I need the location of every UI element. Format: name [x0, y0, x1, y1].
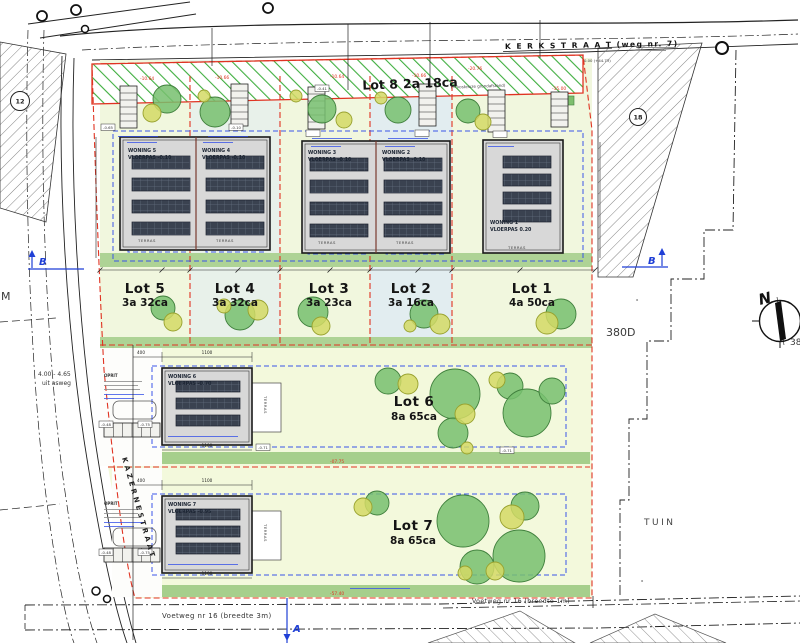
w6-level: VLOERPAS -0.70	[168, 381, 212, 387]
terras-label: TERRAS	[137, 238, 156, 243]
solar-panel-row	[132, 178, 190, 191]
tree-yellow	[475, 114, 491, 130]
dim-1100: 1100	[202, 350, 213, 355]
tree-green	[385, 97, 411, 123]
section-a-label: A	[292, 624, 301, 635]
lot7-area: 8a 65ca	[390, 535, 436, 547]
north-label: N	[757, 288, 774, 309]
tree-yellow	[398, 374, 418, 394]
spot-height: -0.71	[258, 445, 268, 450]
solar-panel-row	[503, 156, 551, 168]
solar-panel-row	[132, 200, 190, 213]
red-dim: -10.66	[215, 75, 229, 81]
oprit-label-lot7: OPRIT	[104, 501, 118, 506]
solar-panel-row	[384, 224, 442, 237]
lot3-name: Lot 3	[309, 281, 349, 297]
parcel-partial-label: 38	[790, 338, 800, 348]
lot2-area: 3a 16ca	[388, 297, 434, 309]
w2-name: WONING 2	[382, 150, 410, 156]
tree-green	[539, 378, 565, 404]
tuin-label: TUIN	[643, 518, 675, 528]
w2-level: VLOERPAS -0.10	[382, 157, 426, 163]
tree-yellow	[536, 312, 558, 334]
w5-name: WONING 5	[128, 148, 156, 154]
asweg-label-2: uit asweg	[42, 380, 71, 387]
red-dim: -10.64	[330, 74, 344, 80]
spot-height: -0.65	[103, 125, 113, 130]
asweg-label-1: 4.00 - 4.65	[38, 371, 71, 378]
solar-panel-row	[176, 543, 240, 554]
spot-x: x	[641, 578, 644, 583]
solar-panel-row	[176, 526, 240, 537]
benchmark-label: 0.00 (+44.73)	[584, 58, 611, 63]
w7-level: VLOERPAS -0.95	[168, 509, 211, 515]
terras-label: TERRAS	[317, 240, 336, 245]
lot7-name: Lot 7	[393, 518, 433, 534]
solar-panel-row	[310, 180, 368, 193]
dim-400: 400	[137, 478, 145, 483]
voetweg-3m-label: Voetweg nr 16 (breedte 3m)	[162, 612, 272, 620]
tree-yellow	[198, 90, 210, 102]
storage-stack	[231, 84, 248, 126]
lot5-name: Lot 5	[125, 281, 165, 297]
red-dim: -10.64	[140, 76, 154, 82]
hedge-band-backyards	[100, 253, 592, 267]
hatched-parcel-west	[0, 42, 66, 222]
spot-height: -0.41	[317, 86, 327, 91]
w6-name: WONING 6	[168, 374, 197, 380]
tree-yellow	[489, 372, 505, 388]
tree-green	[437, 495, 489, 547]
site-plan-canvas: 12 18	[0, 0, 800, 643]
lot4-area: 3a 32ca	[212, 297, 258, 309]
dim-1100: 1100	[202, 571, 213, 576]
tree-yellow	[458, 566, 472, 580]
parcel-number-12: 12	[15, 98, 24, 106]
terras-label: TERRAS	[215, 238, 234, 243]
storage-stack	[551, 92, 568, 127]
tree-yellow	[143, 104, 161, 122]
voetweg-1m-label: Voetweg nr 16 (breedte 1m)	[472, 598, 570, 605]
lot6-name: Lot 6	[394, 394, 434, 410]
red-dim: -07.75	[330, 459, 344, 465]
spot-height: -0.75	[140, 422, 150, 427]
hedge-band-lot7	[162, 585, 590, 597]
lot4-name: Lot 4	[215, 281, 255, 297]
parcel-380d-label: 380D	[606, 326, 635, 339]
dim-1100: 1100	[202, 478, 213, 483]
section-b-label: B	[39, 257, 47, 268]
solar-panel-row	[176, 398, 240, 409]
m-label: M	[1, 290, 11, 303]
bottom-hatches	[428, 611, 726, 643]
solar-panel-row	[132, 222, 190, 235]
lot6-area: 8a 65ca	[391, 411, 437, 423]
hedge-band-lot6	[162, 452, 590, 464]
spot-x: x	[636, 297, 639, 302]
solar-panel-row	[206, 178, 264, 191]
lot1-name: Lot 1	[512, 281, 552, 297]
spot-height: -0.71	[502, 448, 512, 453]
tree-yellow	[486, 562, 504, 580]
storage-stack	[120, 86, 137, 128]
tree-yellow	[312, 317, 330, 335]
red-dim: -57.40	[330, 591, 344, 597]
tree-yellow	[164, 313, 182, 331]
solar-panel-row	[310, 202, 368, 215]
oprit-label-lot6: OPRIT	[104, 373, 118, 378]
w4-name: WONING 4	[202, 148, 231, 154]
tree-yellow	[404, 320, 416, 332]
section-b-left: B	[28, 250, 84, 269]
parcel-number-18: 18	[633, 114, 643, 122]
solar-panel-row	[503, 174, 551, 186]
w7-name: WONING 7	[168, 502, 196, 508]
site-plan: 12 18	[0, 0, 800, 643]
dim-1100: 1100	[202, 443, 213, 448]
tree-yellow	[455, 404, 475, 424]
w4-level: VLOERPAS -0.10	[202, 155, 246, 161]
solar-panel-row	[503, 192, 551, 204]
red-dim: -15.00	[552, 86, 566, 92]
solar-panel-row	[310, 224, 368, 237]
tree-yellow	[336, 112, 352, 128]
w3-level: VLOERPAS -0.10	[308, 157, 352, 163]
red-dim: -20.76	[468, 66, 482, 72]
lot3-area: 3a 23ca	[306, 297, 352, 309]
lot5-area: 3a 32ca	[122, 297, 168, 309]
spot-height: -0.48	[101, 550, 111, 555]
terras-label: TERRAS	[263, 523, 268, 542]
tree-yellow	[354, 498, 372, 516]
w1-name: WONING 1	[490, 220, 518, 226]
solar-panel-row	[384, 202, 442, 215]
spot-height: -0.48	[101, 422, 111, 427]
tree-yellow	[461, 442, 473, 454]
lot1-area: 4a 50ca	[509, 297, 555, 309]
tree-green	[308, 95, 336, 123]
solar-panel-row	[206, 200, 264, 213]
dim-400: 400	[137, 350, 145, 355]
tree-yellow	[375, 92, 387, 104]
hatched-parcel-east	[598, 43, 702, 277]
solar-panel-row	[384, 180, 442, 193]
terras-label: TERRAS	[507, 245, 526, 250]
tree-green	[375, 368, 401, 394]
solar-panel-row	[176, 415, 240, 426]
tree-yellow	[430, 314, 450, 334]
tree-yellow	[290, 90, 302, 102]
w5-level: VLOERPAS -0.10	[128, 155, 172, 161]
lot2-name: Lot 2	[391, 281, 431, 297]
w1-level: VLOERPAS 0.20	[490, 227, 532, 233]
spot-height: -0.10	[231, 125, 241, 130]
solar-panel-row	[206, 222, 264, 235]
terras-label: TERRAS	[263, 395, 268, 414]
terras-label: TERRAS	[395, 240, 414, 245]
hedge-band-lots-bottom	[100, 337, 592, 348]
tree-yellow	[500, 505, 524, 529]
section-b-label: B	[648, 256, 656, 267]
w3-name: WONING 3	[308, 150, 336, 156]
